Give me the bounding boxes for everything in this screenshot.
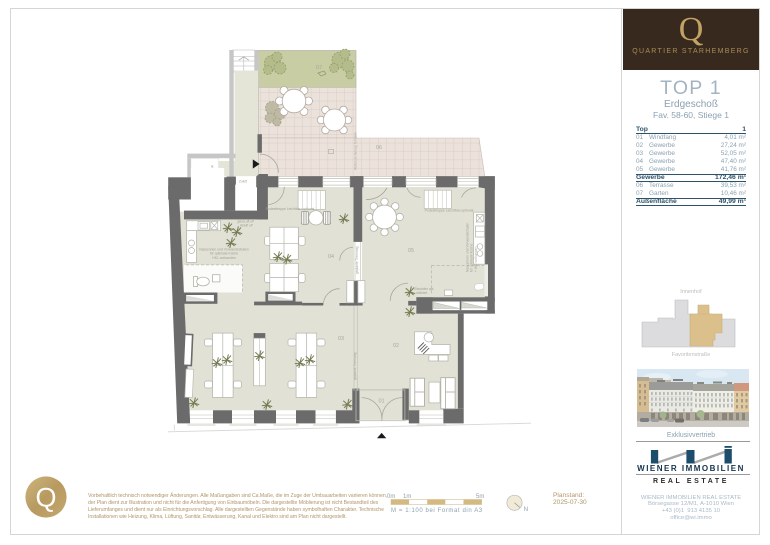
svg-text:HKL vorhanden: HKL vorhanden (212, 256, 236, 260)
svg-text:M = 1:100 bei Format din A3: M = 1:100 bei Format din A3 (391, 508, 483, 514)
svg-text:Abluft uP: Abluft uP (240, 224, 253, 228)
svg-text:möbliert: möbliert (416, 291, 427, 295)
svg-text:5m: 5m (476, 494, 484, 500)
svg-text:geplante Trennung: geplante Trennung (355, 246, 359, 274)
svg-text:04: 04 (328, 254, 334, 260)
svg-text:+ WC vorhanden: + WC vorhanden (474, 246, 478, 272)
svg-text:Q: Q (35, 483, 56, 513)
svg-text:1m: 1m (403, 494, 411, 500)
svg-text:03: 03 (338, 336, 344, 342)
svg-text:02: 02 (393, 343, 399, 349)
svg-text:05: 05 (408, 248, 414, 254)
svg-text:N: N (524, 506, 529, 513)
svg-text:0m: 0m (387, 494, 395, 500)
svg-text:Absturzsicherung Terrasse: Absturzsicherung Terrasse (354, 132, 358, 170)
svg-text:Podesttreppe Leichtbau optiona: Podesttreppe Leichtbau optional (425, 209, 474, 213)
svg-text:Podesttreppe Leichtbau optiona: Podesttreppe Leichtbau optional (266, 207, 315, 211)
svg-text:geplante Trennung: geplante Trennung (353, 352, 357, 380)
svg-text:06: 06 (376, 145, 382, 151)
svg-text:Zuluft: Zuluft (239, 180, 247, 184)
svg-text:07: 07 (316, 65, 322, 71)
svg-text:01: 01 (379, 399, 385, 405)
